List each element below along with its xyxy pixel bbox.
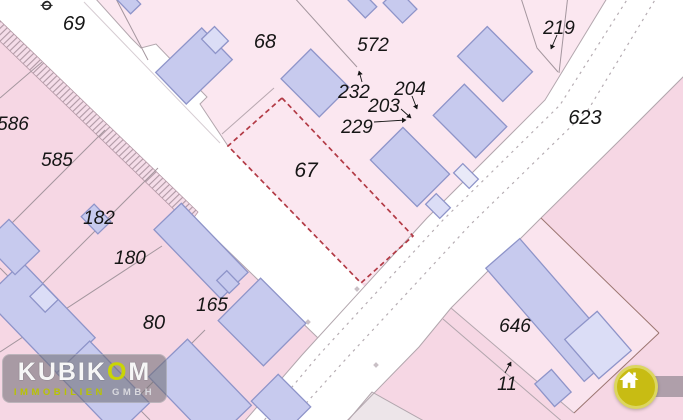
parcel-label-646: 646 [499, 316, 531, 337]
parcel-label-585: 585 [41, 150, 73, 171]
parcel-label-180: 180 [114, 248, 146, 269]
parcel-label-67: 67 [294, 159, 319, 182]
parcel-label-203: 203 [367, 96, 400, 117]
cadastral-map-view[interactable]: 69 68 572 219 586 585 232 204 203 229 62… [0, 0, 683, 420]
parcel-label-572: 572 [357, 35, 389, 56]
parcel-label-182: 182 [83, 208, 115, 229]
parcel-label-232: 232 [337, 82, 370, 103]
parcel-label-11: 11 [497, 374, 517, 395]
parcel-label-229: 229 [340, 117, 373, 138]
logo-wordmark: KUBIKOM [18, 360, 151, 385]
parcel-label-69: 69 [63, 13, 85, 35]
logo-tagline: IMMOBILIEN GMBH [14, 388, 155, 398]
parcel-label-623: 623 [568, 107, 601, 129]
parcel-label-586: 586 [0, 114, 29, 135]
parcel-label-68: 68 [254, 31, 276, 53]
home-button[interactable] [614, 365, 658, 409]
parcel-label-165: 165 [196, 295, 228, 316]
kubikom-logo: KUBIKOM IMMOBILIEN GMBH [2, 354, 167, 403]
parcel-label-80: 80 [143, 312, 165, 334]
logo-accent-letter: O [107, 358, 128, 386]
parcel-label-219: 219 [542, 18, 575, 39]
